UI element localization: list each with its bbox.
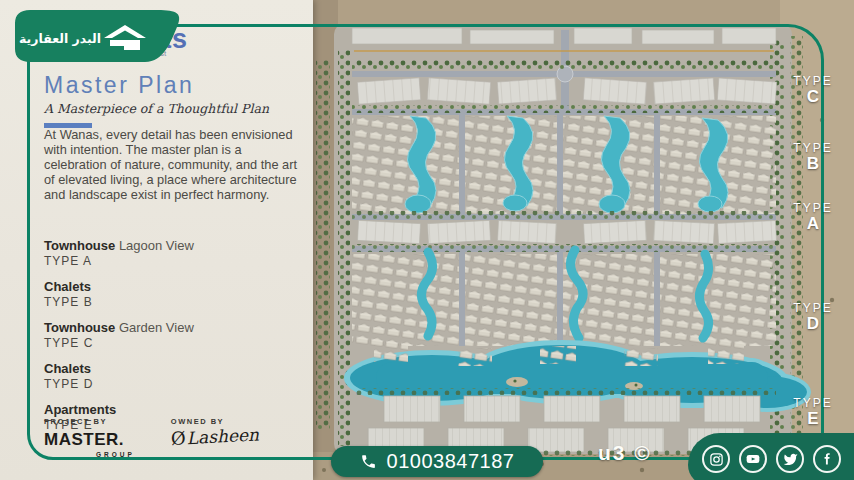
owned-by-block: OWNED BY ØLasheen — [171, 417, 259, 458]
list-item: Chalets TYPE D — [44, 361, 194, 391]
project-by-block: PROJECT BY MASTER. GROUP — [44, 417, 135, 458]
list-item: Townhouse Lagoon View TYPE A — [44, 238, 194, 268]
facebook-button[interactable] — [813, 445, 841, 473]
instagram-button[interactable] — [702, 445, 730, 473]
twitter-button[interactable] — [776, 445, 804, 473]
lasheen-monogram-icon: Ø — [170, 427, 186, 449]
phone-contact-button[interactable]: 01003847187 — [331, 446, 543, 477]
phone-icon — [360, 453, 377, 470]
watermark: u3 © — [598, 441, 652, 465]
master-plan-map — [312, 0, 854, 480]
unit-type-list: Townhouse Lagoon View TYPE A Chalets TYP… — [44, 238, 194, 443]
twitter-icon — [783, 452, 798, 467]
description-text: At Wanas, every detail has been envision… — [44, 128, 302, 203]
facebook-icon — [820, 452, 835, 467]
badge-arabic-text: البدر العقارية — [19, 31, 101, 46]
phone-number: 01003847187 — [387, 450, 515, 473]
project-by-label: PROJECT BY — [44, 417, 135, 426]
master-group-logo: MASTER. — [44, 430, 135, 450]
social-links-bar — [688, 433, 854, 480]
youtube-button[interactable] — [739, 445, 767, 473]
list-item: Townhouse Garden View TYPE C — [44, 320, 194, 350]
page-title: Master Plan — [44, 72, 269, 99]
youtube-icon — [745, 451, 761, 467]
brand-badge: البدر العقارية — [8, 6, 184, 66]
master-group-sub: GROUP — [96, 451, 135, 458]
instagram-icon — [709, 452, 724, 467]
page-subtitle: A Masterpiece of a Thoughtful Plan — [44, 101, 269, 116]
list-item: Chalets TYPE B — [44, 279, 194, 309]
lasheen-signature: ØLasheen — [170, 423, 259, 449]
